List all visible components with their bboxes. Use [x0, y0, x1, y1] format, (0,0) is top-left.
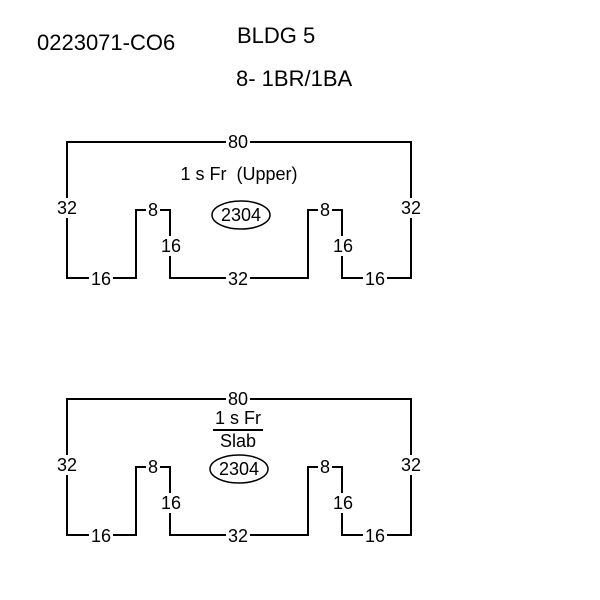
- dim-label-bottom-left: 16: [89, 526, 113, 546]
- dim-label-bottom-center: 32: [226, 269, 250, 289]
- dim-label-right: 32: [399, 198, 423, 218]
- dim-label-right: 32: [399, 455, 423, 475]
- dim-label-top: 80: [226, 389, 250, 409]
- sketch-ground-caption-top: 1 s Fr: [213, 408, 263, 428]
- sketch-upper-area-value: 2304: [221, 206, 261, 224]
- dim-label-notch-left-height: 16: [159, 236, 183, 256]
- sketch-upper-caption: 1 s Fr (Upper): [178, 164, 299, 184]
- dim-label-left: 32: [55, 198, 79, 218]
- dim-label-notch-right-top: 8: [318, 457, 332, 477]
- dim-label-left: 32: [55, 455, 79, 475]
- dim-label-notch-left-top: 8: [146, 200, 160, 220]
- building-label: BLDG 5: [237, 24, 315, 48]
- dim-label-notch-left-top: 8: [146, 457, 160, 477]
- dim-label-notch-right-top: 8: [318, 200, 332, 220]
- sketch-ground-caption-bottom: Slab: [218, 431, 258, 451]
- dim-label-bottom-center: 32: [226, 526, 250, 546]
- dim-label-notch-right-height: 16: [331, 236, 355, 256]
- dim-label-notch-right-height: 16: [331, 493, 355, 513]
- dim-label-bottom-left: 16: [89, 269, 113, 289]
- dim-label-notch-left-height: 16: [159, 493, 183, 513]
- dim-label-top: 80: [226, 132, 250, 152]
- dim-label-bottom-right: 16: [363, 526, 387, 546]
- dim-label-bottom-right: 16: [363, 269, 387, 289]
- sketch-ground-area-value: 2304: [219, 460, 259, 478]
- sketch-page: 0223071-CO6 BLDG 5 8- 1BR/1BA 1 s Fr (Up…: [0, 0, 600, 600]
- file-number: 0223071-CO6: [37, 31, 175, 55]
- units-label: 8- 1BR/1BA: [236, 67, 352, 91]
